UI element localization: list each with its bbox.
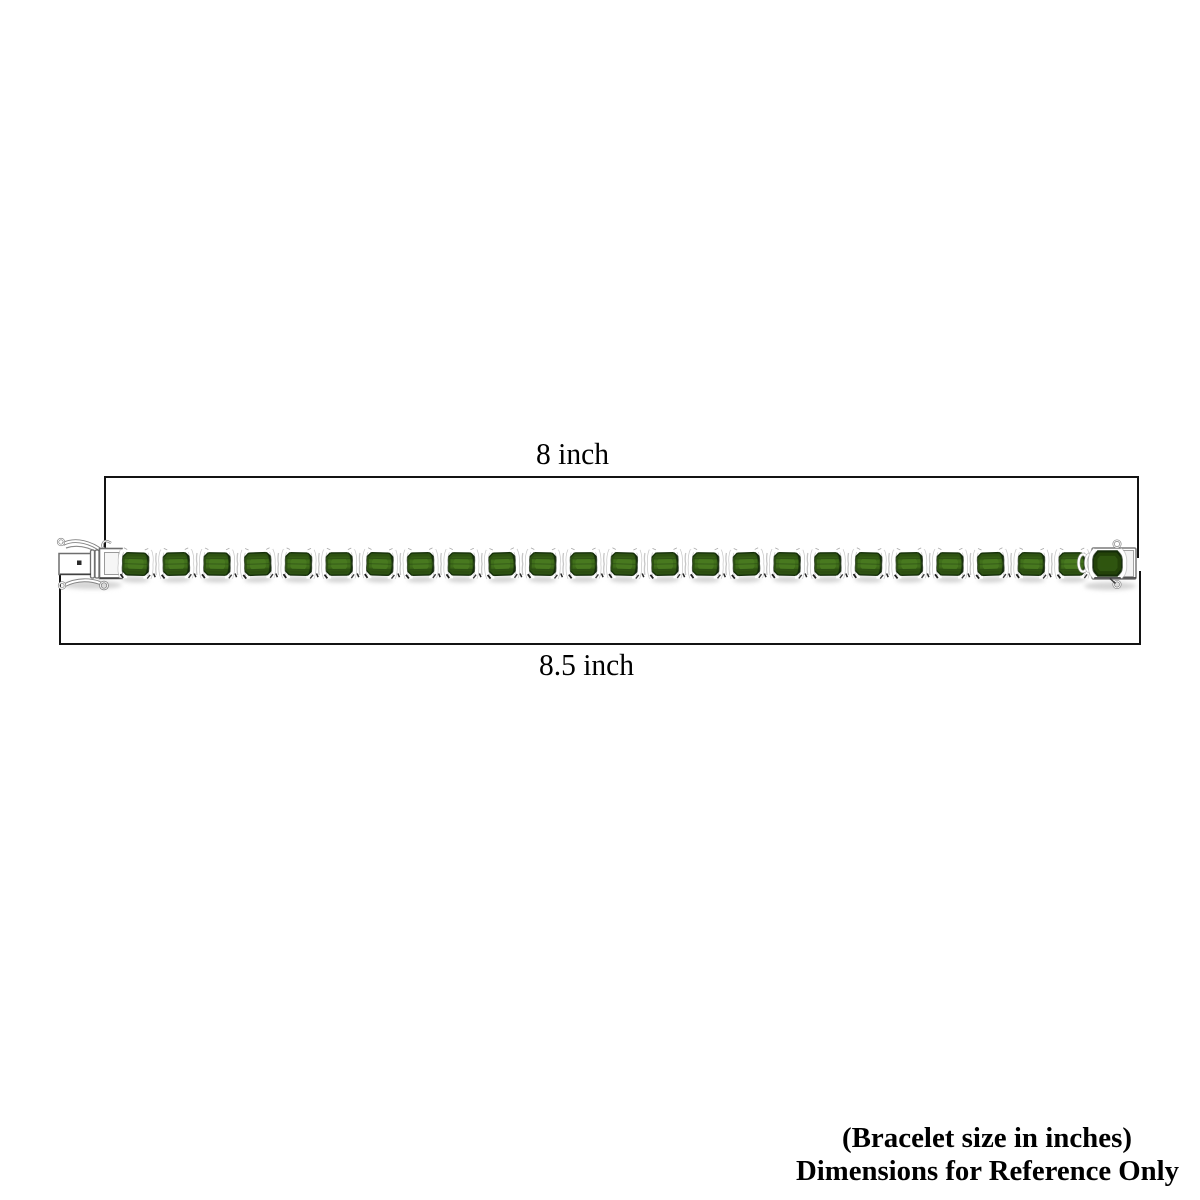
- svg-text:(Bracelet size in inches): (Bracelet size in inches): [842, 1122, 1132, 1154]
- svg-text:8.5 inch: 8.5 inch: [539, 647, 634, 682]
- svg-text:Dimensions for Reference Only: Dimensions for Reference Only: [796, 1155, 1179, 1187]
- svg-text:8 inch: 8 inch: [536, 436, 609, 471]
